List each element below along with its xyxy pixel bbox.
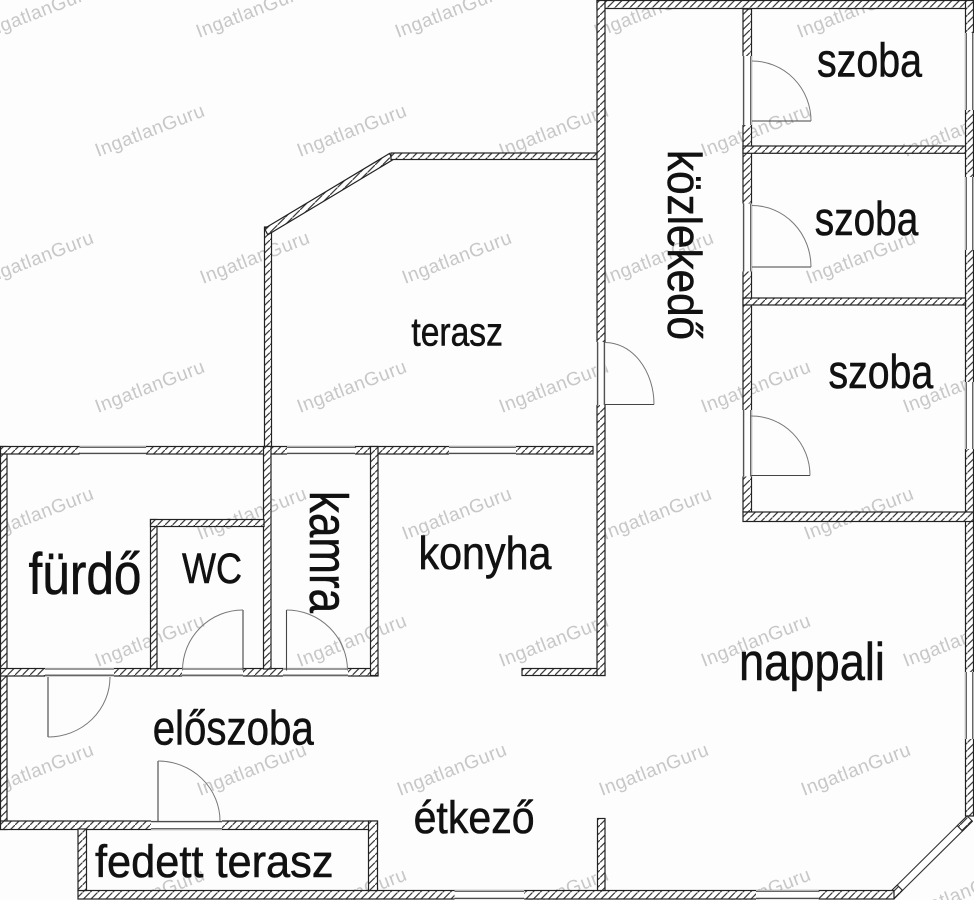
svg-text:konyha: konyha [419,527,552,579]
svg-text:WC: WC [182,545,242,593]
svg-text:étkező: étkező [414,792,535,843]
svg-text:kamra: kamra [298,491,358,614]
svg-text:közlekedő: közlekedő [658,150,711,340]
svg-text:szoba: szoba [815,192,919,245]
svg-text:szoba: szoba [829,345,934,398]
svg-text:nappali: nappali [739,633,885,692]
svg-text:fedett terasz: fedett terasz [95,836,334,887]
svg-text:szoba: szoba [817,34,923,87]
svg-text:előszoba: előszoba [153,702,314,755]
svg-text:terasz: terasz [411,310,503,354]
svg-text:fürdő: fürdő [29,542,142,607]
